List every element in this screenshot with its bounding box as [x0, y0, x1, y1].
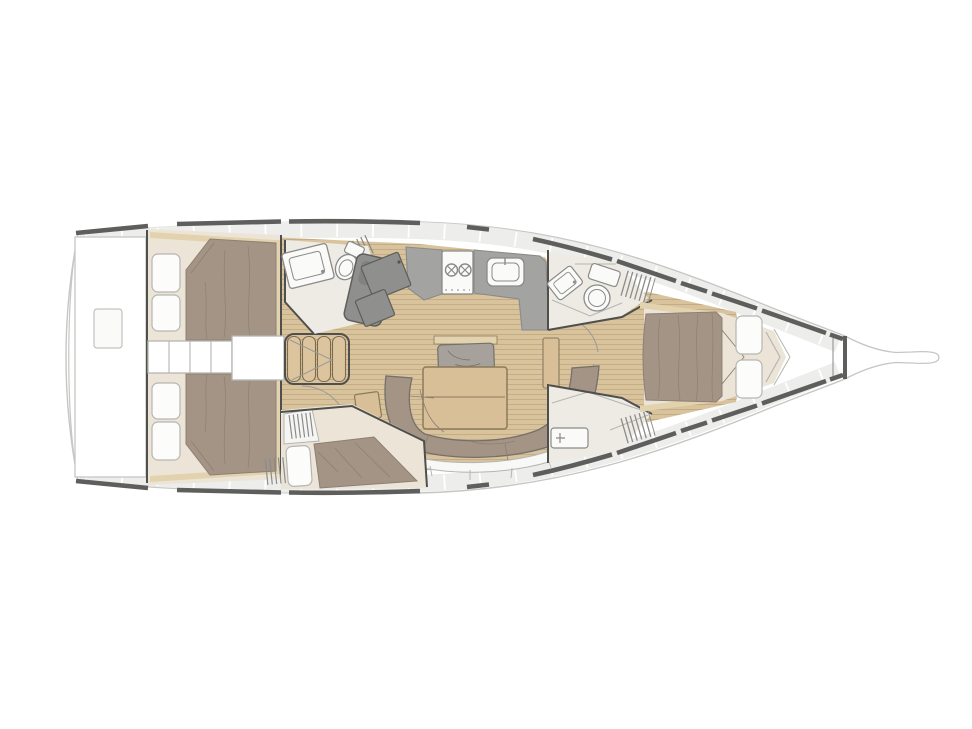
bed-pillow	[152, 422, 180, 460]
stove	[442, 251, 473, 294]
aft-cabin-port	[148, 229, 281, 341]
bed-pillow	[152, 383, 180, 419]
bed-duvet	[186, 374, 276, 475]
mast-cabinet	[543, 338, 559, 388]
shower-sink	[551, 428, 588, 448]
aft-cabin-starboard	[148, 373, 281, 485]
companionway-landing	[232, 336, 284, 380]
step-tread	[303, 337, 316, 382]
hull-edge-segment	[177, 490, 281, 493]
step-tread	[333, 337, 346, 382]
step-tread	[318, 337, 331, 382]
galley-sink	[487, 258, 524, 286]
bed-duvet	[186, 239, 276, 340]
swim-ladder	[94, 309, 122, 348]
hull-edge-segment	[289, 221, 420, 223]
hull-edge-segment	[177, 222, 281, 225]
bed-pillow	[736, 316, 762, 354]
hull-edge-segment	[289, 491, 420, 493]
bed-pillow	[152, 254, 180, 292]
hull-edge-segment	[467, 485, 489, 488]
step-tread	[288, 337, 301, 382]
bed-pillow	[736, 360, 762, 398]
salon-table	[423, 367, 507, 429]
yacht-floorplan-canvas	[0, 0, 972, 729]
bed-pillow	[286, 445, 313, 487]
hull-edge-segment	[467, 227, 489, 230]
yacht-floorplan	[0, 0, 972, 729]
bed-pillow	[152, 295, 180, 331]
bed-duvet	[643, 312, 722, 402]
stern-swim-platform	[69, 237, 146, 477]
